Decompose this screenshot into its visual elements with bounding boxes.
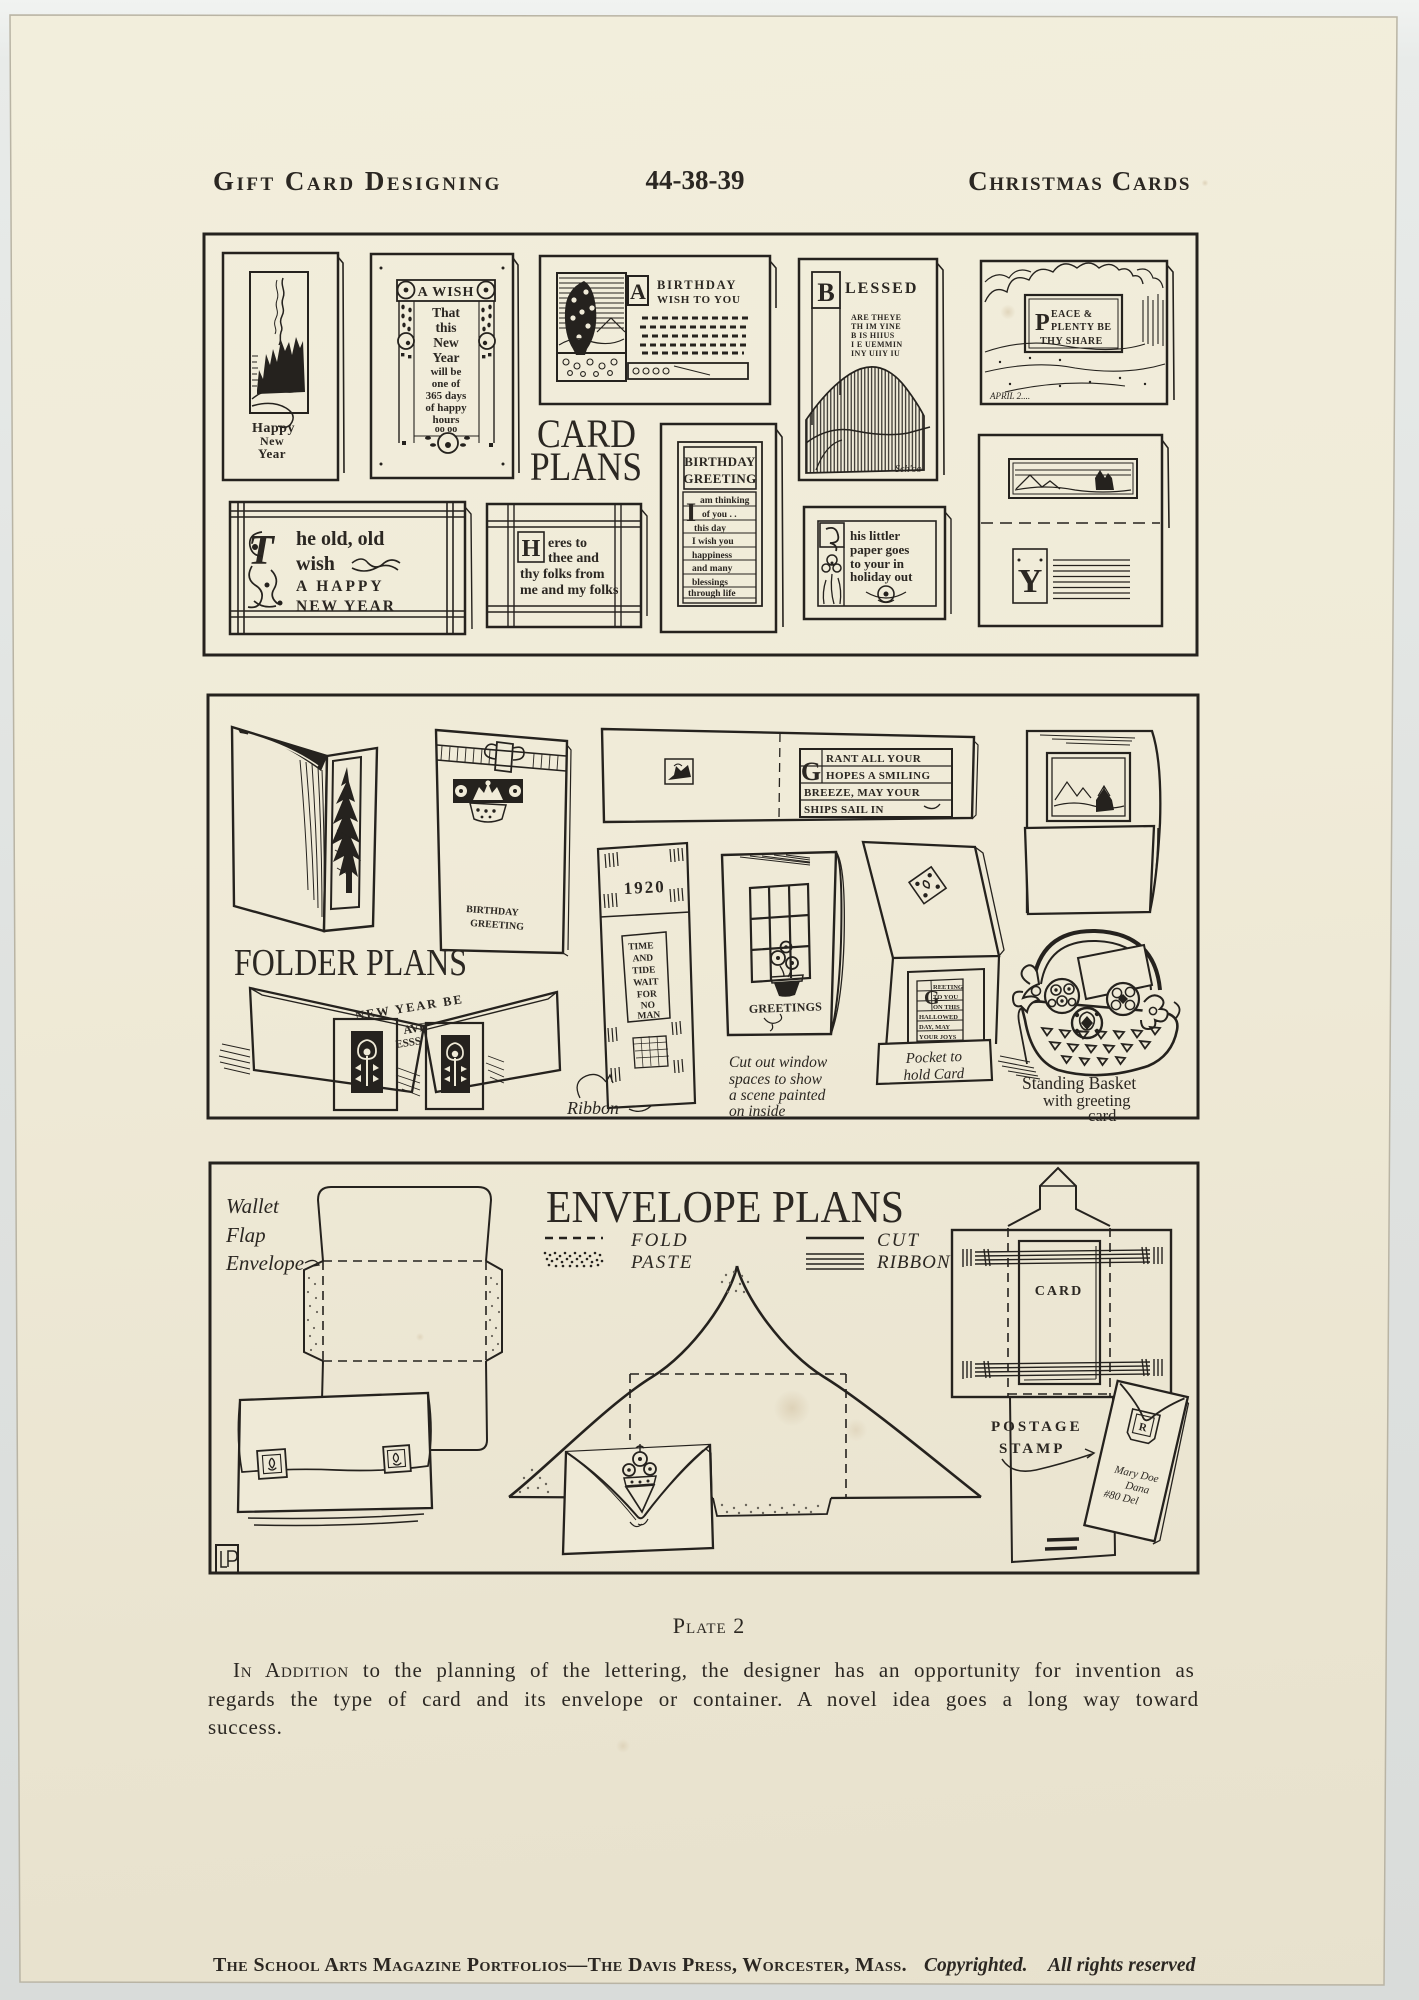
svg-text:B IS HIIUS: B IS HIIUS — [851, 331, 895, 340]
svg-text:BIRTHDAY: BIRTHDAY — [657, 278, 737, 292]
svg-text:APRIL 2....: APRIL 2.... — [989, 391, 1030, 401]
svg-text:MAN: MAN — [637, 1010, 660, 1021]
svg-text:TH IM YINE: TH IM YINE — [851, 322, 901, 331]
svg-text:I: I — [686, 498, 696, 527]
svg-text:PLENTY BE: PLENTY BE — [1051, 322, 1112, 333]
svg-text:a scene painted: a scene painted — [729, 1087, 826, 1104]
svg-text:CARD: CARD — [1035, 1284, 1083, 1299]
svg-text:P: P — [1035, 310, 1050, 336]
svg-text:thee and: thee and — [548, 551, 599, 566]
svg-text:spaces to show: spaces to show — [729, 1071, 823, 1088]
svg-text:That: That — [432, 305, 460, 320]
svg-text:with greeting: with greeting — [1043, 1091, 1131, 1110]
svg-text:In Addition to the planning of: In Addition to the planning of the lette… — [233, 1658, 1195, 1682]
svg-text:AVE: AVE — [402, 1019, 428, 1037]
svg-text:GREETING: GREETING — [683, 471, 756, 486]
svg-text:B: B — [817, 278, 834, 307]
svg-text:STAMP: STAMP — [999, 1441, 1065, 1457]
svg-text:365 days: 365 days — [426, 390, 467, 402]
svg-text:blessings: blessings — [692, 578, 728, 588]
svg-text:of you . .: of you . . — [702, 510, 737, 520]
svg-text:REETING: REETING — [933, 984, 963, 991]
svg-text:FOR: FOR — [637, 989, 658, 1000]
svg-text:Year: Year — [258, 446, 286, 461]
svg-text:am thinking: am thinking — [700, 496, 750, 506]
svg-text:TIME: TIME — [628, 941, 654, 952]
svg-text:A HAPPY: A HAPPY — [296, 578, 385, 595]
svg-text:success.: success. — [208, 1715, 283, 1739]
svg-text:G: G — [801, 757, 821, 786]
svg-text:ARE THEYE: ARE THEYE — [851, 313, 901, 322]
svg-text:Ribbon: Ribbon — [566, 1098, 619, 1118]
svg-text:RIBBON: RIBBON — [876, 1252, 951, 1273]
svg-text:of happy: of happy — [425, 402, 467, 414]
svg-text:this: this — [435, 320, 456, 335]
svg-text:AND: AND — [632, 953, 653, 964]
svg-text:Envelope: Envelope — [225, 1251, 304, 1275]
svg-text:NO: NO — [641, 1001, 656, 1012]
svg-text:WAIT: WAIT — [633, 977, 659, 988]
svg-text:thy folks from: thy folks from — [520, 567, 605, 582]
svg-text:happiness: happiness — [692, 551, 732, 561]
svg-text:through life: through life — [688, 589, 736, 599]
svg-text:Standing Basket: Standing Basket — [1022, 1073, 1136, 1093]
svg-text:YOUR JOYS: YOUR JOYS — [919, 1034, 957, 1041]
svg-text:H: H — [522, 536, 541, 562]
svg-text:THY SHARE: THY SHARE — [1040, 336, 1103, 347]
svg-text:EACE &: EACE & — [1051, 309, 1093, 320]
svg-text:ESSS: ESSS — [395, 1035, 422, 1051]
svg-text:Wallet: Wallet — [226, 1194, 280, 1218]
svg-text:GREETINGS: GREETINGS — [749, 999, 823, 1016]
svg-text:TO YOU: TO YOU — [933, 994, 958, 1001]
svg-text:BIRTHDAY: BIRTHDAY — [466, 904, 520, 919]
svg-text:WISH TO YOU: WISH TO YOU — [657, 294, 741, 306]
svg-text:TIDE: TIDE — [632, 965, 656, 976]
svg-text:wish: wish — [296, 553, 335, 575]
svg-text:he old, old: he old, old — [296, 528, 384, 550]
svg-text:Pocket to: Pocket to — [904, 1049, 962, 1067]
svg-text:this day: this day — [694, 524, 726, 534]
svg-text:HALLOWED: HALLOWED — [919, 1014, 958, 1021]
svg-text:Year: Year — [433, 350, 460, 365]
svg-text:regards the type of card and i: regards the type of card and its envelop… — [208, 1687, 1199, 1711]
svg-text:44-38-39: 44-38-39 — [646, 165, 745, 195]
svg-text:New: New — [433, 335, 459, 350]
svg-text:FOLD: FOLD — [630, 1230, 689, 1251]
svg-text:paper goes: paper goes — [850, 542, 909, 557]
svg-text:Y: Y — [1018, 563, 1043, 600]
svg-text:one of: one of — [432, 378, 461, 390]
svg-text:POSTAGE: POSTAGE — [991, 1419, 1083, 1435]
svg-text:BREEZE, MAY YOUR: BREEZE, MAY YOUR — [804, 787, 921, 799]
svg-text:PASTE: PASTE — [630, 1252, 693, 1273]
svg-text:DAY, MAY: DAY, MAY — [919, 1024, 950, 1031]
svg-text:Christmas Cards: Christmas Cards — [968, 166, 1191, 196]
svg-text:PLANS: PLANS — [530, 444, 642, 489]
svg-text:Flap: Flap — [225, 1223, 266, 1247]
svg-text:LESSED: LESSED — [845, 280, 918, 297]
svg-text:FOLDER PLANS: FOLDER PLANS — [234, 942, 467, 984]
svg-text:will be: will be — [431, 366, 462, 378]
svg-text:A WISH: A WISH — [418, 285, 475, 300]
svg-text:I wish you: I wish you — [692, 537, 734, 547]
svg-text:Plate 2: Plate 2 — [673, 1613, 745, 1638]
svg-text:ON THIS: ON THIS — [933, 1004, 960, 1011]
svg-text:GREETING: GREETING — [470, 918, 525, 933]
svg-text:holiday out: holiday out — [850, 569, 913, 584]
svg-text:Copyrighted.: Copyrighted. — [924, 1955, 1027, 1976]
svg-text:card: card — [1088, 1106, 1117, 1125]
svg-text:eres to: eres to — [548, 536, 587, 551]
svg-text:SHIPS SAIL IN: SHIPS SAIL IN — [804, 804, 884, 816]
svg-text:INY UIIY IU: INY UIIY IU — [851, 349, 900, 358]
svg-text:hold Card: hold Card — [903, 1066, 965, 1084]
svg-text:CUT: CUT — [877, 1230, 920, 1251]
svg-text:on inside: on inside — [729, 1103, 786, 1120]
svg-text:1920: 1920 — [623, 877, 666, 898]
svg-text:his littler: his littler — [850, 528, 900, 543]
svg-text:Gift Card Designing: Gift Card Designing — [213, 166, 502, 196]
svg-text:HOPES A SMILING: HOPES A SMILING — [826, 770, 930, 782]
svg-text:me and my folks: me and my folks — [520, 583, 619, 598]
svg-text:ENVELOPE PLANS: ENVELOPE PLANS — [546, 1181, 904, 1232]
svg-text:The School Arts Magazine Portf: The School Arts Magazine Portfolios—The … — [213, 1955, 907, 1976]
svg-text:A: A — [630, 279, 646, 304]
svg-text:Sch'oo: Sch'oo — [895, 464, 922, 475]
svg-text:Cut out window: Cut out window — [729, 1054, 828, 1071]
svg-text:and many: and many — [692, 564, 733, 574]
svg-text:I E UEMMIN: I E UEMMIN — [851, 340, 903, 349]
svg-text:All rights reserved: All rights reserved — [1046, 1955, 1196, 1976]
svg-text:NEW YEAR: NEW YEAR — [296, 598, 396, 615]
svg-text:BIRTHDAY: BIRTHDAY — [684, 454, 756, 469]
svg-text:RANT ALL YOUR: RANT ALL YOUR — [826, 753, 922, 765]
